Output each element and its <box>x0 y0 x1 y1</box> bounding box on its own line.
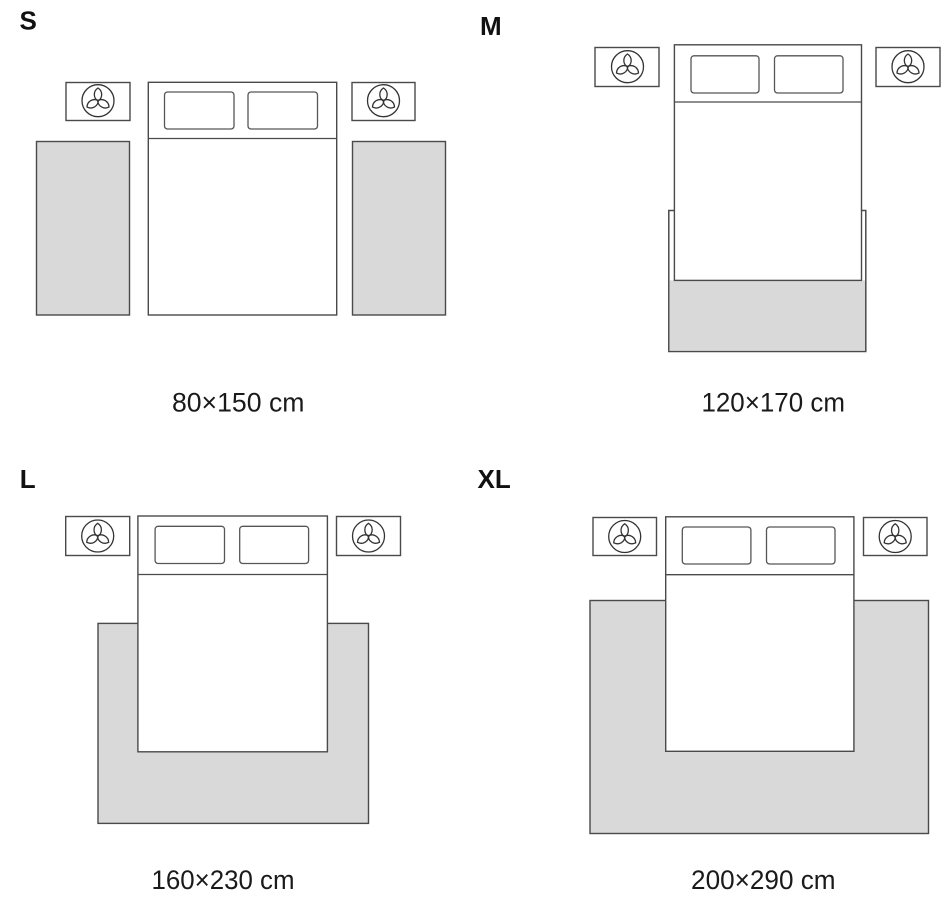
svg-text:M: M <box>480 11 502 41</box>
svg-text:160×230 cm: 160×230 cm <box>152 865 295 895</box>
svg-text:S: S <box>20 6 37 36</box>
svg-text:80×150 cm: 80×150 cm <box>172 388 305 418</box>
svg-text:200×290 cm: 200×290 cm <box>691 865 836 895</box>
svg-text:120×170 cm: 120×170 cm <box>701 388 845 418</box>
svg-text:XL: XL <box>478 464 511 494</box>
svg-text:L: L <box>20 464 36 494</box>
